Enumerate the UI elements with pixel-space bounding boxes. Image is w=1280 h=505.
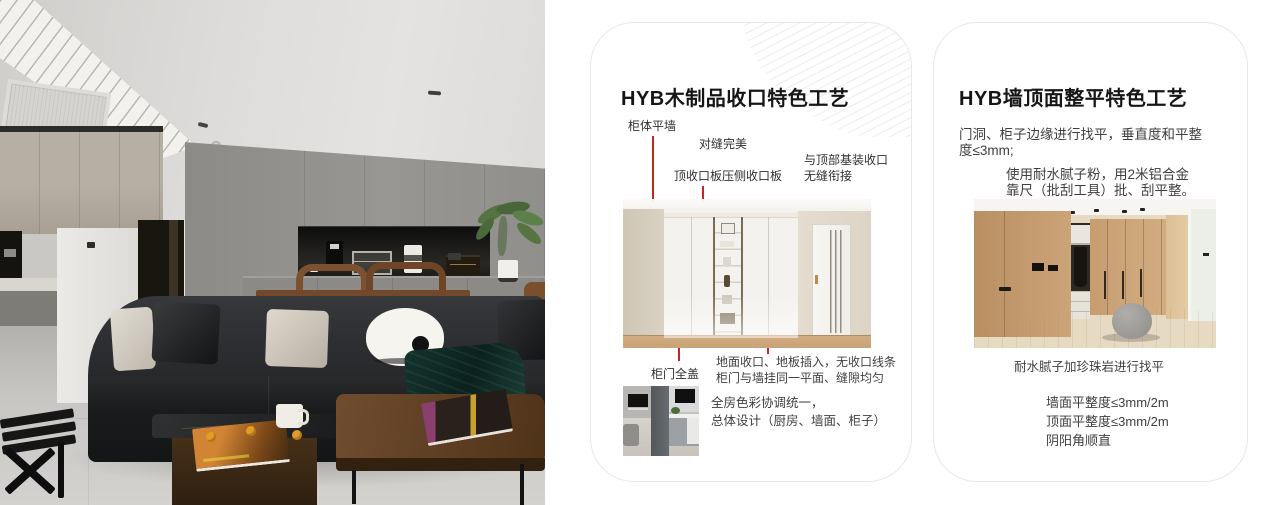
cream-pillow: [265, 309, 329, 368]
stool-leg: [58, 442, 64, 498]
putty-line1: 使用耐水腻子粉，用2米铝合金: [1006, 167, 1195, 183]
flatness-bullets: 墙面平整度≤3mm/2m 顶面平整度≤3mm/2m 阴阳角顺直: [1046, 393, 1169, 450]
render-light-reflection: [664, 294, 798, 338]
summary-line2: 总体设计（厨房、墙面、柜子）: [711, 412, 886, 430]
wardrobe-render-image: [623, 199, 871, 348]
leveling-paragraph: 门洞、柜子边缘进行找平，垂直度和平整度≤3mm;: [959, 127, 1211, 159]
bullet-ceiling-flatness: 顶面平整度≤3mm/2m: [1046, 412, 1169, 431]
card-title: HYB墙顶面整平特色工艺: [959, 82, 1187, 111]
shelf-bottle: [724, 275, 730, 287]
label-perfect-seam: 对缝完美: [699, 136, 747, 152]
thumb-tv-light: [628, 408, 648, 410]
kitchen-upper-cabinets: [0, 126, 163, 234]
wardrobe-handle: [1140, 269, 1142, 297]
wood-table-edge: [336, 458, 545, 471]
label-ceiling-joint-line1: 与顶部基装收口: [804, 152, 888, 168]
summary-line1: 全房色彩协调统一，: [711, 394, 886, 412]
label-top-closing-board: 顶收口板压侧收口板: [674, 168, 782, 184]
coffee-machine-black: [326, 241, 343, 265]
thumb-gray-column: [651, 386, 669, 456]
light-switch: [1032, 263, 1044, 271]
closet-shelf: [1071, 225, 1090, 245]
thumb-appliance: [675, 389, 695, 403]
table-leg: [520, 464, 524, 505]
putty-paragraph: 使用耐水腻子粉，用2米铝合金 靠尺（批刮工具）批、刮平整。: [1006, 167, 1195, 199]
thumb-plant: [671, 407, 680, 414]
card-title: HYB木制品收口特色工艺: [621, 82, 849, 111]
door-slats: [830, 230, 843, 333]
downlight: [1122, 210, 1127, 213]
door-handle: [815, 275, 818, 284]
hall-angled-wall: [1166, 215, 1188, 319]
label-cabinet-flush-wall: 柜体平墙: [628, 118, 676, 134]
label-ceiling-joint-line2: 无缝衔接: [804, 168, 888, 184]
render-interior-door: [812, 224, 851, 340]
white-mug: [276, 404, 303, 428]
kitchen-counter: [0, 278, 58, 291]
thumb-tv: [628, 394, 648, 407]
photo-caption: 耐水腻子加珍珠岩进行找平: [1014, 359, 1164, 375]
interior-thumbnail-photo: [623, 386, 699, 456]
page: HYB木制品收口特色工艺 柜体平墙 对缝完美 顶收口板压侧收口板 与顶部基装收口…: [0, 0, 1280, 505]
render-left-wall: [623, 209, 664, 338]
plant-pot: [498, 260, 518, 282]
floor-closing-line2: 柜门与墙挂同一平面、缝隙均匀: [716, 371, 896, 387]
bullet-wall-flatness: 墙面平整度≤3mm/2m: [1046, 393, 1169, 412]
orange-fruit: [246, 426, 256, 436]
summary-text: 全房色彩协调统一， 总体设计（厨房、墙面、柜子）: [711, 394, 886, 430]
ceiling-light-slot: [428, 91, 441, 96]
wall-socket: [448, 253, 461, 260]
downlight: [1094, 209, 1099, 212]
orange-fruit: [292, 430, 302, 440]
black-pillow: [151, 301, 220, 364]
bullet-corners-straight: 阴阳角顺直: [1046, 431, 1169, 450]
floor-closing-line1: 地面收口、地板插入，无收口线条: [716, 355, 896, 371]
thumb-sofa: [623, 424, 639, 446]
putty-line2: 靠尺（批刮工具）批、刮平整。: [1006, 183, 1195, 199]
door-handle: [999, 287, 1011, 291]
orange-fruit: [206, 432, 216, 442]
cream-pillow: [110, 307, 156, 372]
card-wall-ceiling-leveling-craft: HYB墙顶面整平特色工艺 门洞、柜子边缘进行找平，垂直度和平整度≤3mm; 使用…: [933, 22, 1248, 482]
floor-closing-text: 地面收口、地板插入，无收口线条 柜门与墙挂同一平面、缝隙均匀: [716, 355, 896, 386]
thumb-white-cabinet: [687, 418, 699, 444]
decorative-fan-lines: [744, 22, 912, 137]
downlight: [1140, 208, 1145, 211]
shelf-box: [720, 241, 734, 247]
hall-open-closet: [1071, 223, 1090, 319]
living-room-photo: [0, 0, 545, 505]
table-leg: [352, 470, 356, 504]
hanging-coat: [1074, 247, 1087, 287]
label-door-full-overlay: 柜门全盖: [651, 366, 699, 382]
plant-stem: [497, 216, 508, 256]
hallway-photo: [974, 199, 1216, 348]
hall-white-door: [1188, 209, 1216, 321]
label-ceiling-joint: 与顶部基装收口 无缝衔接: [804, 152, 888, 184]
shelf-vase: [723, 257, 731, 267]
shelf-picture-frame: [721, 223, 735, 234]
card-wood-finish-craft: HYB木制品收口特色工艺 柜体平墙 对缝完美 顶收口板压侧收口板 与顶部基装收口…: [590, 22, 912, 482]
